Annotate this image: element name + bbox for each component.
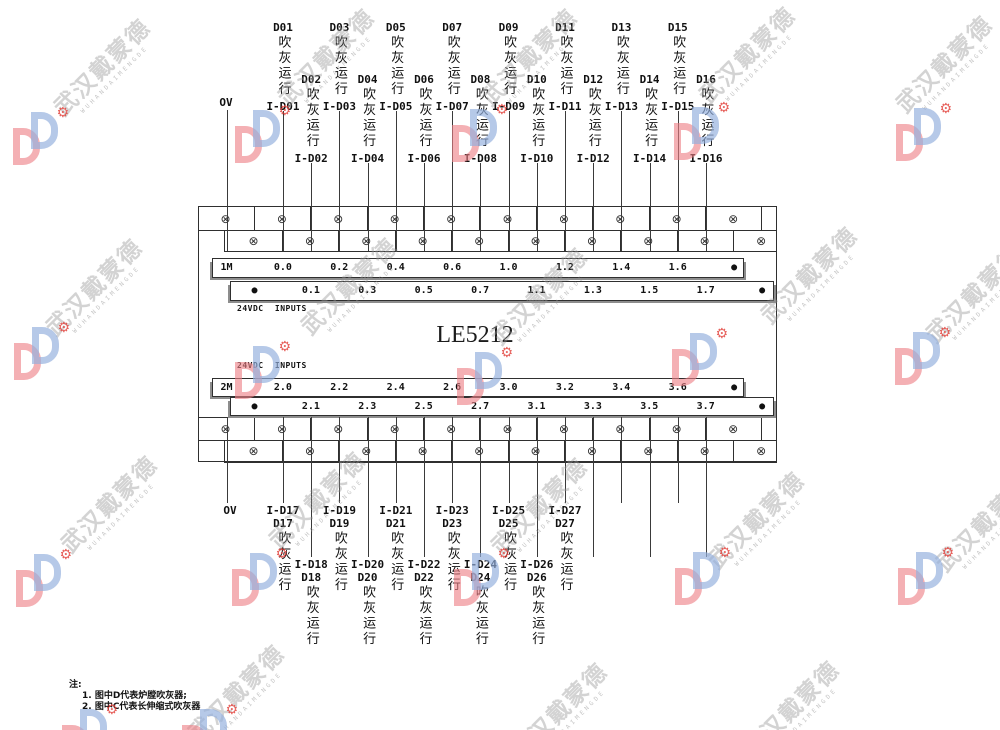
channel-function-text: 吹灰运行 [529, 87, 544, 151]
channel-plc-address: I-D02 [295, 152, 328, 165]
terminal-screw-icon: ⊗ [361, 235, 371, 247]
channel-function-text: 吹灰运行 [473, 87, 488, 151]
wire [368, 163, 369, 251]
channel-function-text: 吹灰运行 [558, 531, 573, 595]
channel-function-text: 吹灰运行 [614, 35, 629, 99]
bus-address-label: 1.7 [697, 282, 715, 300]
channel-function-text: 吹灰运行 [332, 531, 347, 595]
terminal-screw-icon: ⊗ [559, 213, 569, 225]
channel-function-text: 吹灰运行 [445, 35, 460, 99]
channel-plc-address: I-D08 [464, 152, 497, 165]
bus-address-label: 0.0 [274, 259, 292, 277]
terminal-screw-icon: ⊗ [220, 423, 230, 435]
terminal-screw-icon: ⊗ [333, 423, 343, 435]
channel-device-id: D23 [442, 517, 462, 530]
bus-address-label: 2M [220, 379, 232, 396]
diagram-layer: LE5212 24VDC INPUTS 24VDC INPUTS 注: 1. 图… [0, 0, 1000, 730]
channel-plc-address: I-D23 [436, 504, 469, 517]
terminal-screw-icon: ⊗ [672, 423, 682, 435]
channel-device-id: D13 [611, 21, 631, 34]
channel-function-text: 吹灰运行 [558, 35, 573, 99]
channel-device-id: D01 [273, 21, 293, 34]
wire [678, 417, 679, 503]
cell-divider [733, 230, 734, 251]
channel-plc-address: I-D12 [577, 152, 610, 165]
terminal-screw-icon: ⊗ [643, 235, 653, 247]
bus-bar-1m: 1M0.00.20.40.61.01.21.41.6● [212, 258, 744, 278]
wire [480, 417, 481, 557]
channel-device-id: D27 [555, 517, 575, 530]
channel-device-id: D04 [358, 73, 378, 86]
channel-function-text: 吹灰运行 [304, 87, 319, 151]
bus-address-label: 0.6 [443, 259, 461, 277]
wire [565, 417, 566, 503]
plc-wiring-diagram-page: LE5212 24VDC INPUTS 24VDC INPUTS 注: 1. 图… [0, 0, 1000, 730]
terminal-screw-icon: ⊗ [502, 423, 512, 435]
channel-function-text: 吹灰运行 [276, 35, 291, 99]
channel-device-id: D19 [329, 517, 349, 530]
terminal-screw-icon: ⊗ [643, 445, 653, 457]
channel-device-id: D03 [329, 21, 349, 34]
bus-address-label: ● [731, 259, 737, 277]
bus-address-label: 1.4 [612, 259, 630, 277]
terminal-screw-icon: ⊗ [305, 445, 315, 457]
wire [621, 111, 622, 251]
terminal-screw-icon: ⊗ [277, 423, 287, 435]
bus-address-label: 2.7 [471, 398, 489, 415]
terminal-screw-icon: ⊗ [248, 235, 258, 247]
channel-device-id: D17 [273, 517, 293, 530]
bus-bar-odd-0: ●0.10.30.50.71.11.31.51.7● [230, 281, 774, 301]
channel-device-id: D24 [470, 571, 490, 584]
channel-device-id: D11 [555, 21, 575, 34]
channel-function-text: 吹灰运行 [445, 531, 460, 595]
terminal-screw-icon: ⊗ [277, 213, 287, 225]
bus-address-label: 1M [220, 259, 232, 277]
wire [396, 111, 397, 251]
wire [283, 417, 284, 503]
channel-device-id: D12 [583, 73, 603, 86]
terminal-screw-icon: ⊗ [248, 445, 258, 457]
wire [565, 111, 566, 251]
channel-label-top: D16吹灰运行I-D16 [689, 73, 722, 165]
strip-row-divider [198, 417, 777, 418]
bus-address-label: 3.0 [499, 379, 517, 396]
wire [678, 111, 679, 251]
terminal-screw-icon: ⊗ [418, 235, 428, 247]
channel-device-id: D22 [414, 571, 434, 584]
terminal-screw-icon: ⊗ [728, 423, 738, 435]
channel-device-id: D21 [386, 517, 406, 530]
channel-plc-address: I-D19 [323, 504, 356, 517]
terminal-screw-icon: ⊗ [220, 213, 230, 225]
channel-function-text: 吹灰运行 [529, 585, 544, 649]
bus-address-label: ● [759, 282, 765, 300]
bus-address-label: 2.3 [358, 398, 376, 415]
terminal-screw-icon: ⊗ [474, 235, 484, 247]
bus-address-label: 1.0 [499, 259, 517, 277]
channel-function-text: 吹灰运行 [473, 585, 488, 649]
wire [650, 163, 651, 251]
footnote-1: 1. 图中D代表炉膛吹灰器; [82, 691, 200, 702]
wire [509, 417, 510, 503]
channel-plc-address: I-D10 [520, 152, 553, 165]
channel-device-id: D02 [301, 73, 321, 86]
bus-bar-odd-2: ●2.12.32.52.73.13.33.53.7● [230, 397, 774, 416]
bus-address-label: 0.4 [387, 259, 405, 277]
bus-address-label: 2.0 [274, 379, 292, 396]
bus-address-label: 3.2 [556, 379, 574, 396]
footnotes: 注: 1. 图中D代表炉膛吹灰器; 2. 图中C代表长伸缩式吹灰器 [69, 680, 200, 713]
bus-address-label: 0.1 [302, 282, 320, 300]
channel-device-id: D18 [301, 571, 321, 584]
terminal-screw-icon: ⊗ [390, 423, 400, 435]
bus-address-label: 0.3 [358, 282, 376, 300]
wire [283, 111, 284, 251]
channel-device-id: D10 [527, 73, 547, 86]
bus-address-label: ● [759, 398, 765, 415]
wire [396, 417, 397, 503]
wire [368, 417, 369, 557]
channel-plc-address: I-D25 [492, 504, 525, 517]
cell-divider [733, 440, 734, 462]
channel-function-text: 吹灰运行 [332, 35, 347, 99]
channel-device-id: D25 [499, 517, 519, 530]
zero-volt-label-bottom: OV [223, 504, 236, 517]
bus-address-label: 2.4 [387, 379, 405, 396]
bus-address-label: 3.5 [640, 398, 658, 415]
channel-device-id: D05 [386, 21, 406, 34]
channel-plc-address: I-D04 [351, 152, 384, 165]
channel-function-text: 吹灰运行 [360, 87, 375, 151]
wire [452, 111, 453, 251]
channel-function-text: 吹灰运行 [388, 531, 403, 595]
bus-address-label: 2.5 [415, 398, 433, 415]
terminal-screw-icon: ⊗ [530, 445, 540, 457]
wire [227, 417, 228, 503]
terminal-screw-icon: ⊗ [756, 235, 766, 247]
terminal-screw-icon: ⊗ [361, 445, 371, 457]
wire [339, 111, 340, 251]
terminal-screw-icon: ⊗ [587, 445, 597, 457]
bus-address-label: 3.7 [697, 398, 715, 415]
channel-device-id: D14 [640, 73, 660, 86]
bus-address-label: 1.6 [669, 259, 687, 277]
zero-volt-label-top: OV [219, 96, 232, 109]
channel-device-id: D08 [470, 73, 490, 86]
wire [650, 417, 651, 557]
terminal-screw-icon: ⊗ [756, 445, 766, 457]
channel-function-text: 吹灰运行 [360, 585, 375, 649]
bus-address-label: 1.2 [556, 259, 574, 277]
channel-function-text: 吹灰运行 [642, 87, 657, 151]
cell-divider [761, 206, 762, 230]
channel-function-text: 吹灰运行 [699, 87, 714, 151]
bus-address-label: 3.3 [584, 398, 602, 415]
wire [509, 111, 510, 251]
terminal-screw-icon: ⊗ [700, 235, 710, 247]
wire [621, 417, 622, 503]
terminal-screw-icon: ⊗ [502, 213, 512, 225]
wire [452, 417, 453, 503]
wire [593, 163, 594, 251]
bus-address-label: 0.5 [415, 282, 433, 300]
channel-function-text: 吹灰运行 [586, 87, 601, 151]
channel-plc-address: I-D14 [633, 152, 666, 165]
terminal-screw-icon: ⊗ [305, 235, 315, 247]
channel-device-id: D15 [668, 21, 688, 34]
wire [480, 163, 481, 251]
cell-divider [761, 417, 762, 440]
terminal-screw-icon: ⊗ [559, 423, 569, 435]
wire [424, 163, 425, 251]
terminal-screw-icon: ⊗ [333, 213, 343, 225]
wire [424, 417, 425, 557]
terminal-screw-icon: ⊗ [615, 213, 625, 225]
cell-divider [254, 206, 255, 230]
terminal-screw-icon: ⊗ [728, 213, 738, 225]
channel-function-text: 吹灰运行 [276, 531, 291, 595]
channel-label-bottom: I-D27D27吹灰运行 [548, 504, 581, 596]
terminal-screw-icon: ⊗ [700, 445, 710, 457]
terminal-screw-icon: ⊗ [474, 445, 484, 457]
bus-address-label: ● [731, 379, 737, 396]
footnote-2: 2. 图中C代表长伸缩式吹灰器 [82, 702, 200, 713]
bus-address-label: ● [251, 398, 257, 415]
channel-function-text: 吹灰运行 [501, 35, 516, 99]
terminal-screw-icon: ⊗ [587, 235, 597, 247]
channel-device-id: D06 [414, 73, 434, 86]
channel-plc-address: I-D21 [379, 504, 412, 517]
bus-address-label: ● [251, 282, 257, 300]
wire [706, 163, 707, 251]
channel-device-id: D07 [442, 21, 462, 34]
bus-address-label: 2.6 [443, 379, 461, 396]
bus-address-label: 1.1 [527, 282, 545, 300]
bus-address-label: 0.7 [471, 282, 489, 300]
channel-function-text: 吹灰运行 [501, 531, 516, 595]
channel-function-text: 吹灰运行 [388, 35, 403, 99]
bus-address-label: 3.1 [527, 398, 545, 415]
channel-plc-address: I-D17 [266, 504, 299, 517]
wire [537, 417, 538, 557]
bus-address-label: 3.4 [612, 379, 630, 396]
bus-address-label: 3.6 [669, 379, 687, 396]
wire [311, 417, 312, 557]
wire [311, 163, 312, 251]
channel-function-text: 吹灰运行 [417, 585, 432, 649]
terminal-screw-icon: ⊗ [530, 235, 540, 247]
terminal-screw-icon: ⊗ [446, 423, 456, 435]
terminal-screw-icon: ⊗ [418, 445, 428, 457]
terminal-screw-icon: ⊗ [672, 213, 682, 225]
bus-address-label: 1.5 [640, 282, 658, 300]
cell-divider [254, 417, 255, 440]
wire [593, 417, 594, 557]
bus-address-label: 1.3 [584, 282, 602, 300]
bus-address-label: 2.1 [302, 398, 320, 415]
channel-device-id: D26 [527, 571, 547, 584]
channel-device-id: D20 [358, 571, 378, 584]
channel-function-text: 吹灰运行 [670, 35, 685, 99]
bus-address-label: 0.2 [330, 259, 348, 277]
terminal-screw-icon: ⊗ [615, 423, 625, 435]
wire [706, 417, 707, 557]
bus-address-label: 2.2 [330, 379, 348, 396]
channel-device-id: D09 [499, 21, 519, 34]
channel-plc-address: I-D16 [689, 152, 722, 165]
wire [227, 110, 228, 251]
terminal-screw-icon: ⊗ [390, 213, 400, 225]
wire [339, 417, 340, 503]
terminal-screw-icon: ⊗ [446, 213, 456, 225]
bus-bar-2m: 2M2.02.22.42.63.03.23.43.6● [212, 378, 744, 397]
footnotes-title: 注: [69, 680, 200, 691]
wire [537, 163, 538, 251]
channel-function-text: 吹灰运行 [417, 87, 432, 151]
channel-plc-address: I-D06 [407, 152, 440, 165]
channel-device-id: D16 [696, 73, 716, 86]
channel-function-text: 吹灰运行 [304, 585, 319, 649]
channel-plc-address: I-D27 [548, 504, 581, 517]
